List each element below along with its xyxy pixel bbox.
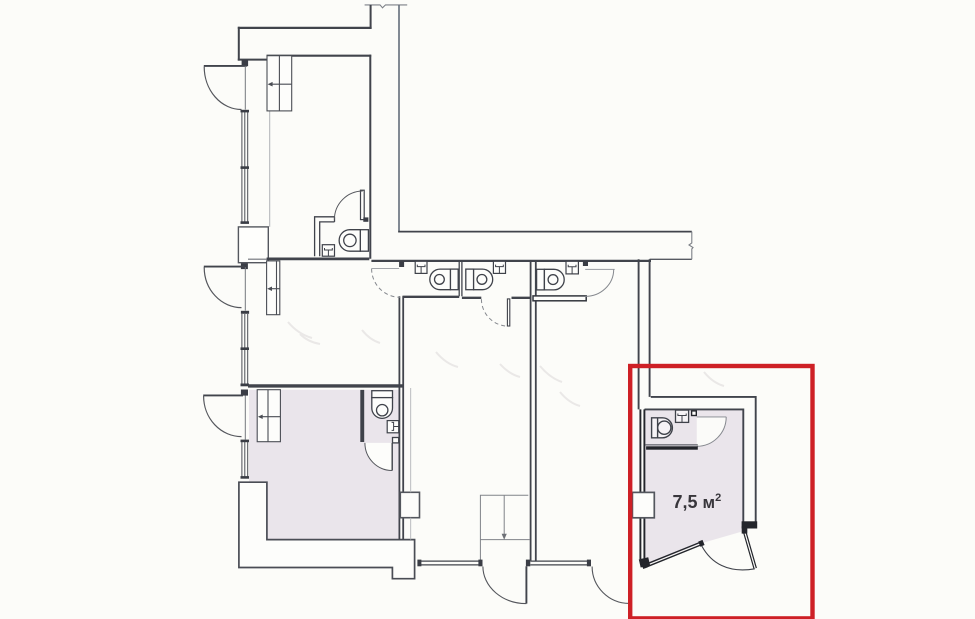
svg-text:7,5 м2: 7,5 м2 xyxy=(673,492,722,512)
